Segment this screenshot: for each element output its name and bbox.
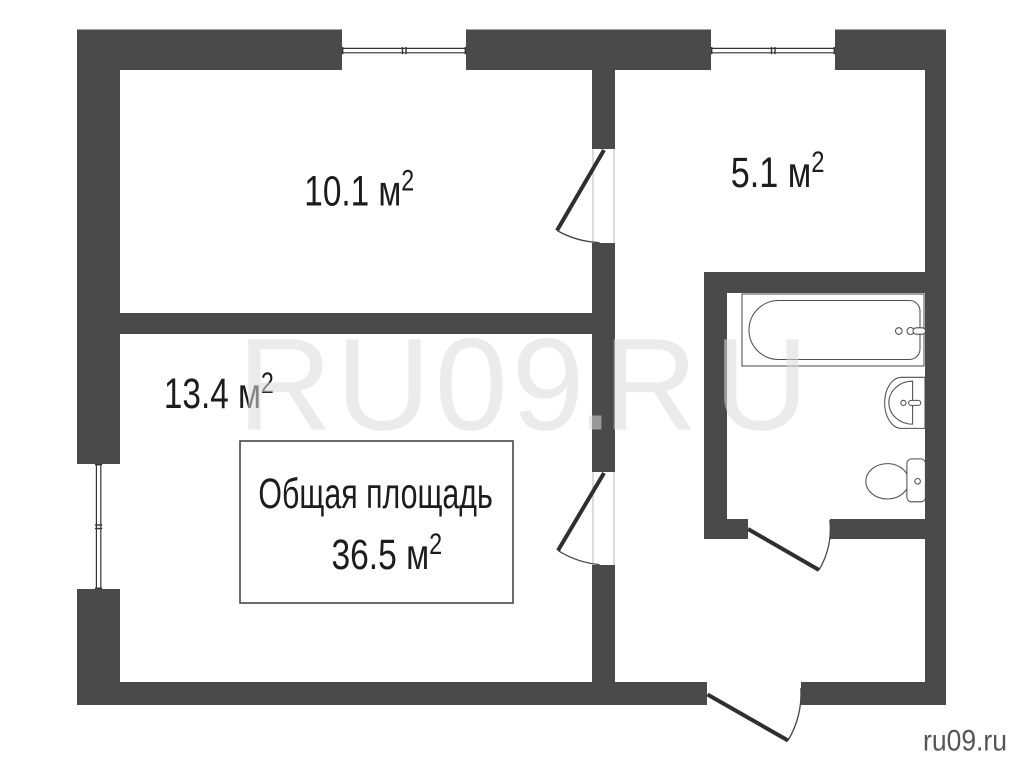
svg-text:36.5 м2: 36.5 м2	[332, 527, 443, 579]
svg-text:5.1 м2: 5.1 м2	[731, 144, 825, 197]
svg-text:.RU: .RU	[577, 311, 809, 458]
svg-text:ru09.ru: ru09.ru	[923, 725, 1007, 758]
svg-text:10.1 м2: 10.1 м2	[304, 164, 414, 216]
svg-text:Общая площадь: Общая площадь	[258, 469, 492, 518]
svg-text:RU09: RU09	[238, 311, 589, 458]
